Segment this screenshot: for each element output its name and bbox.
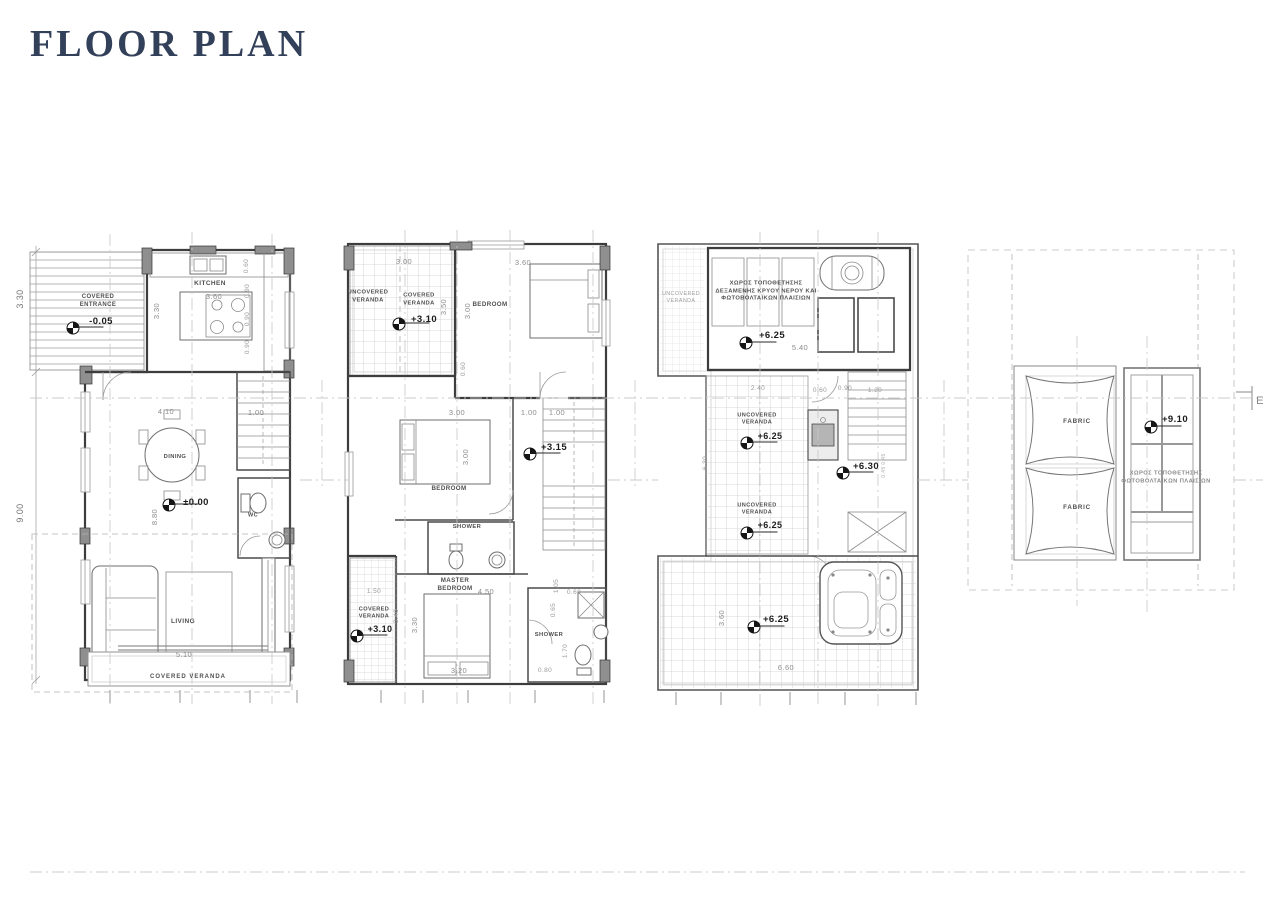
level-marker-minus-005 <box>67 322 80 335</box>
level-marker-625-mid1 <box>741 437 754 450</box>
plan-first-floor <box>344 241 610 684</box>
plan-top-roof <box>968 250 1252 590</box>
level-marker-000 <box>163 499 176 512</box>
level-marker-625-tank <box>740 337 753 350</box>
plan-ground-floor <box>30 246 294 692</box>
floorplan-linework <box>0 0 1263 897</box>
floor-plan-sheet: FLOOR PLAN <box>0 0 1263 897</box>
level-marker-625-terrace <box>748 621 761 634</box>
level-marker-310-bottom <box>351 630 364 643</box>
level-marker-630 <box>837 467 850 480</box>
level-marker-315 <box>524 448 537 461</box>
level-marker-310-top <box>393 318 406 331</box>
level-marker-625-mid2 <box>741 527 754 540</box>
plan-roof-terrace <box>658 244 918 690</box>
level-marker-910 <box>1145 421 1158 434</box>
